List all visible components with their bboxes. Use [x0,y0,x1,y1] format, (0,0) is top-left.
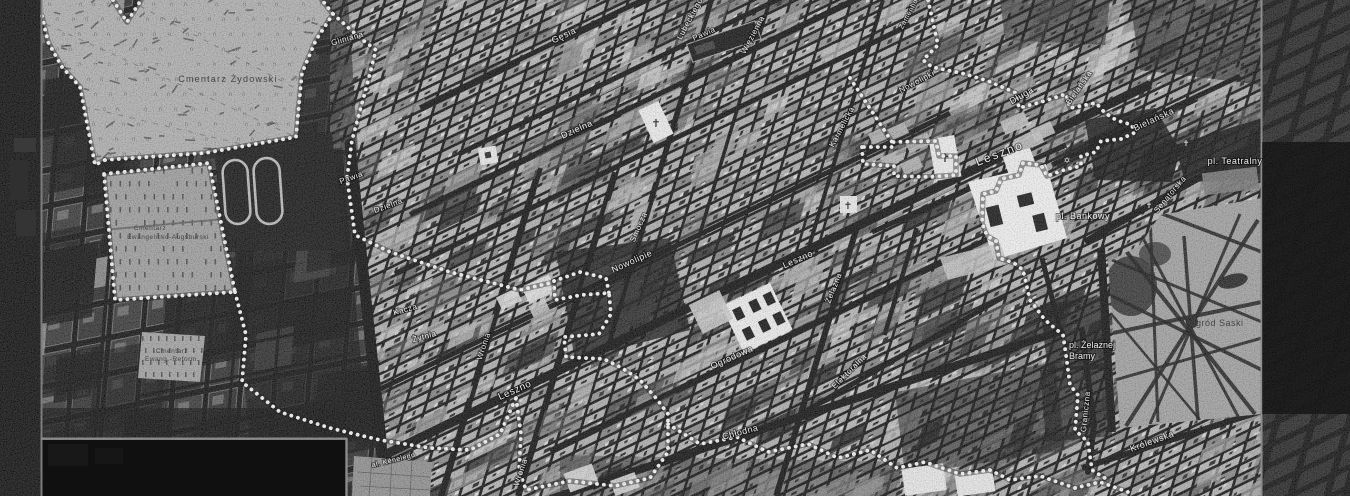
svg-text:✝: ✝ [1146,201,1153,210]
svg-text:✡: ✡ [1064,156,1071,165]
svg-text:pl. Żelaznej: pl. Żelaznej [1069,340,1115,350]
svg-text:✡: ✡ [835,20,842,29]
svg-text:✝: ✝ [1183,139,1190,148]
svg-text:Ewang.-Reform.: Ewang.-Reform. [145,356,199,363]
svg-text:pl. Bankowy: pl. Bankowy [1056,211,1110,221]
svg-text:Ewangelicko-Augsburski: Ewangelicko-Augsburski [127,234,209,241]
svg-text:Cmentarz: Cmentarz [156,348,188,355]
svg-text:Ogród Saski: Ogród Saski [1188,318,1243,328]
svg-text:Bramy: Bramy [1069,351,1096,361]
svg-text:Cmentarz Żydowski: Cmentarz Żydowski [178,74,277,84]
svg-text:✝: ✝ [649,355,656,364]
svg-text:Cmentarz: Cmentarz [134,225,166,232]
svg-text:pl. Teatralny: pl. Teatralny [1208,156,1263,166]
